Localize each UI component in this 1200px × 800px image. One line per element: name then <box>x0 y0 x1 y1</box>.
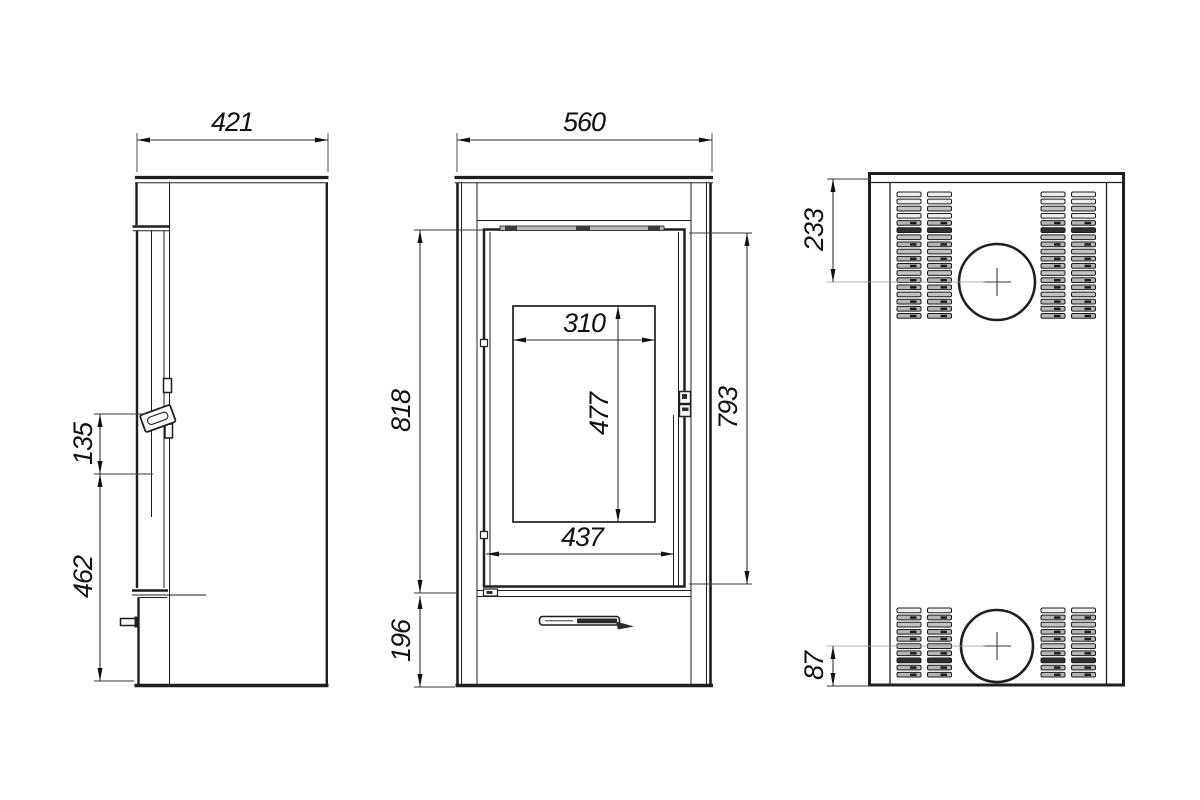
vent-slot <box>1072 285 1096 290</box>
vent-slot <box>928 221 952 226</box>
arrowhead-top-icon <box>418 230 423 243</box>
vent-slot <box>897 306 921 311</box>
vent-slot <box>1041 292 1065 297</box>
arrowhead-bottom-icon <box>418 580 423 593</box>
vent-slot-mark <box>1054 666 1061 668</box>
dim-label: 87 <box>799 650 829 680</box>
vent-slot <box>897 285 921 290</box>
vent-slot-mark <box>1085 308 1092 310</box>
vent-slot-mark <box>941 243 948 245</box>
arrowhead-top-icon <box>616 306 621 319</box>
vent-slot <box>928 622 952 627</box>
dimension-annotations: 42156013546281819631047743779323387 <box>68 107 985 687</box>
vent-slot <box>897 249 921 254</box>
vent-slot-mark <box>941 616 948 618</box>
vent-slot <box>897 213 921 218</box>
vent-slot <box>928 292 952 297</box>
vent-slot-mark <box>1085 652 1092 654</box>
vent-slot <box>897 672 921 677</box>
vent-slot <box>897 228 921 233</box>
vent-slot <box>1072 278 1096 283</box>
vent-slot <box>928 608 952 613</box>
vent-slot <box>928 672 952 677</box>
arrowhead-bottom-icon <box>418 674 423 687</box>
vent-slot-mark <box>941 279 948 281</box>
side-knob-mount <box>135 617 140 628</box>
vent-slot-mark <box>941 652 948 654</box>
side-detail-lines <box>132 183 328 685</box>
vent-slot <box>1072 228 1096 233</box>
vent-slot <box>1041 299 1065 304</box>
vent-slot <box>1072 672 1096 677</box>
vent-slot <box>1041 306 1065 311</box>
vent-slot <box>1072 271 1096 276</box>
vent-slot <box>1041 637 1065 642</box>
vent-slot <box>928 629 952 634</box>
vent-slot <box>897 206 921 211</box>
vent-slot <box>928 651 952 656</box>
vent-slot <box>897 264 921 269</box>
dim-437: 437 <box>486 522 674 557</box>
vent-slot-mark <box>910 631 917 633</box>
vent-slot <box>1041 221 1065 226</box>
arrowhead-left-icon <box>457 138 470 143</box>
vent-slot <box>928 314 952 319</box>
vent-slot-mark <box>941 638 948 640</box>
vent-slot <box>928 285 952 290</box>
vent-slot <box>1072 264 1096 269</box>
vent-slot <box>1041 235 1065 240</box>
vent-slot <box>897 637 921 642</box>
vent-slot <box>1041 651 1065 656</box>
vent-slot-mark <box>910 666 917 668</box>
vent-slot-mark <box>1054 638 1061 640</box>
vent-slot-mark <box>1085 300 1092 302</box>
side-door-knob <box>121 619 137 626</box>
vent-slot-mark <box>910 308 917 310</box>
arrowhead-bottom-icon <box>98 668 103 681</box>
vent-slot-mark <box>941 286 948 288</box>
vent-slot-mark <box>910 616 917 618</box>
vent-slot <box>1041 629 1065 634</box>
vent-slot-mark <box>1085 674 1092 676</box>
vent-slot <box>1041 615 1065 620</box>
vent-slot <box>1041 314 1065 319</box>
vent-slot-mark <box>1085 638 1092 640</box>
vent-slot-mark <box>1085 315 1092 317</box>
vent-slot <box>928 299 952 304</box>
side-body-edges <box>132 183 327 685</box>
vent-slot <box>897 299 921 304</box>
vent-slot <box>1041 278 1065 283</box>
vent-slot-mark <box>941 315 948 317</box>
vent-slot-mark <box>1054 279 1061 281</box>
dim-label: 793 <box>713 386 743 429</box>
arrowhead-bottom-icon <box>831 269 836 282</box>
vent-slot <box>897 629 921 634</box>
arrowhead-bottom-icon <box>745 571 750 584</box>
arrowhead-bottom-icon <box>616 509 621 522</box>
vent-slot-mark <box>1054 222 1061 224</box>
drawing-canvas: 42156013546281819631047743779323387 <box>0 0 1200 800</box>
vent-slot <box>1072 629 1096 634</box>
arrowhead-right-icon <box>315 138 328 143</box>
vent-slot <box>1072 644 1096 649</box>
vent-slot <box>928 192 952 197</box>
vent-slot <box>928 249 952 254</box>
vent-slot <box>897 622 921 627</box>
vent-slot <box>1072 213 1096 218</box>
vent-slot <box>1072 314 1096 319</box>
dim-label: 818 <box>386 389 416 432</box>
vent-slot-mark <box>941 300 948 302</box>
vent-slot-mark <box>941 674 948 676</box>
back-view <box>870 174 1124 686</box>
vent-slot-mark <box>1054 674 1061 676</box>
vent-slot-mark <box>1085 286 1092 288</box>
dim-421: 421 <box>137 107 328 172</box>
vent-slot <box>897 314 921 319</box>
vent-slot <box>1072 242 1096 247</box>
vent-slot-mark <box>1054 308 1061 310</box>
vent-slot-mark <box>1085 265 1092 267</box>
vent-slot-mark <box>1054 652 1061 654</box>
dim-462: 462 <box>68 474 134 681</box>
vent-slot <box>1072 306 1096 311</box>
vent-slot <box>928 264 952 269</box>
dim-label: 196 <box>386 618 416 662</box>
dim-label: 462 <box>68 555 98 598</box>
vent-slot-mark <box>910 286 917 288</box>
front-ash-lever <box>540 617 635 630</box>
vent-slot <box>897 256 921 261</box>
arrowhead-left-icon <box>486 552 499 557</box>
side-view <box>121 178 329 686</box>
vent-slot <box>1072 651 1096 656</box>
vent-slot <box>1072 235 1096 240</box>
dim-label: 233 <box>799 208 829 252</box>
vent-slot <box>1041 622 1065 627</box>
vent-slot-mark <box>910 638 917 640</box>
arrowhead-top-icon <box>418 596 423 609</box>
vent-slot-mark <box>1085 631 1092 633</box>
vent-slot <box>897 292 921 297</box>
vent-slot-mark <box>1085 666 1092 668</box>
vent-slot <box>928 242 952 247</box>
vent-slot-mark <box>910 300 917 302</box>
arrowhead-top-icon <box>98 414 103 427</box>
dim-560: 560 <box>457 107 712 172</box>
vent-slot-mark <box>941 631 948 633</box>
vent-slot <box>897 192 921 197</box>
vent-slot <box>897 242 921 247</box>
vent-slot <box>1072 292 1096 297</box>
vent-slot-mark <box>910 674 917 676</box>
dim-label: 421 <box>211 107 253 137</box>
vent-slot <box>1041 608 1065 613</box>
arrowhead-bottom-icon <box>831 673 836 686</box>
vent-slot-mark <box>910 265 917 267</box>
arrowhead-left-icon <box>137 138 150 143</box>
arrowhead-right-icon <box>699 138 712 143</box>
vent-slot-mark <box>1085 279 1092 281</box>
vent-slot <box>897 221 921 226</box>
vent-slot <box>1041 213 1065 218</box>
arrowhead-left-icon <box>513 338 526 343</box>
dim-310: 310 <box>513 308 655 343</box>
vent-slot <box>1072 608 1096 613</box>
vent-slot-mark <box>1054 258 1061 260</box>
vent-slot <box>1041 256 1065 261</box>
stove-technical-drawing: 42156013546281819631047743779323387 <box>0 0 1200 800</box>
vent-slot <box>928 615 952 620</box>
arrowhead-top-icon <box>831 179 836 192</box>
vent-slot-mark <box>910 652 917 654</box>
vent-slot <box>1072 206 1096 211</box>
vent-slot <box>1072 665 1096 670</box>
vent-slot <box>1072 199 1096 204</box>
vent-slot <box>928 206 952 211</box>
vent-slot-mark <box>1054 631 1061 633</box>
dim-label: 560 <box>563 107 606 137</box>
arrowhead-right-icon <box>642 338 655 343</box>
vent-slot-mark <box>941 308 948 310</box>
vent-slot-mark <box>941 666 948 668</box>
dim-label: 477 <box>584 391 614 435</box>
vent-slot <box>897 608 921 613</box>
vent-slot <box>1041 199 1065 204</box>
vent-slot <box>928 637 952 642</box>
vent-slot <box>1072 615 1096 620</box>
vent-slot <box>897 615 921 620</box>
vent-slot-mark <box>1054 616 1061 618</box>
vent-slot <box>928 228 952 233</box>
vent-slot-mark <box>910 258 917 260</box>
vent-slot-mark <box>1085 616 1092 618</box>
front-door-foot-mark <box>487 591 493 594</box>
vent-slot <box>1072 658 1096 663</box>
vent-slot <box>928 256 952 261</box>
vent-slot <box>1072 221 1096 226</box>
vent-slot-mark <box>910 315 917 317</box>
arrowhead-top-icon <box>831 646 836 659</box>
dim-793: 793 <box>689 233 752 584</box>
vent-slot <box>1072 256 1096 261</box>
vent-slot-mark <box>910 279 917 281</box>
vent-slot <box>897 235 921 240</box>
vent-slot-mark <box>1054 265 1061 267</box>
vent-slot-mark <box>941 258 948 260</box>
dim-135: 135 <box>68 414 153 474</box>
vent-slot <box>1041 249 1065 254</box>
vent-slot-mark <box>1085 222 1092 224</box>
vent-slot <box>1041 264 1065 269</box>
arrowhead-top-icon <box>745 233 750 246</box>
vent-slot <box>928 199 952 204</box>
vent-slot <box>1041 192 1065 197</box>
vent-slot-mark <box>910 222 917 224</box>
vent-slot <box>1041 665 1065 670</box>
dim-477: 477 <box>584 306 621 522</box>
vent-slot-mark <box>1085 243 1092 245</box>
vent-slot <box>928 235 952 240</box>
vent-slot-mark <box>1054 243 1061 245</box>
vent-slot <box>1072 299 1096 304</box>
vent-slot <box>1041 206 1065 211</box>
vent-slot <box>1041 644 1065 649</box>
dim-label: 437 <box>561 522 605 552</box>
vent-slot-mark <box>910 243 917 245</box>
vent-slot <box>1041 285 1065 290</box>
vent-slot <box>1072 622 1096 627</box>
vent-slot <box>928 658 952 663</box>
vent-slot-mark <box>941 265 948 267</box>
vent-slot <box>1041 658 1065 663</box>
vent-slot-mark <box>1054 286 1061 288</box>
vent-slot <box>1072 249 1096 254</box>
vent-slot <box>897 658 921 663</box>
vent-slot <box>1041 242 1065 247</box>
vent-slot-mark <box>1054 315 1061 317</box>
vent-slot <box>897 199 921 204</box>
dim-label: 310 <box>563 308 606 338</box>
vent-slot-mark <box>1054 300 1061 302</box>
arrowhead-top-icon <box>98 474 103 487</box>
vent-slot <box>928 213 952 218</box>
vent-slot <box>1041 672 1065 677</box>
vent-slot <box>928 665 952 670</box>
dim-196: 196 <box>386 596 455 687</box>
arrowhead-bottom-icon <box>98 461 103 474</box>
vent-slot <box>1041 228 1065 233</box>
vent-slot <box>897 271 921 276</box>
dim-label: 135 <box>68 421 98 465</box>
vent-slot <box>897 651 921 656</box>
vent-slot <box>1041 271 1065 276</box>
arrowhead-right-icon <box>661 552 674 557</box>
vent-slot <box>1072 192 1096 197</box>
vent-slot <box>897 665 921 670</box>
vent-slot <box>928 271 952 276</box>
vent-slot-mark <box>1085 258 1092 260</box>
vent-slot <box>1072 637 1096 642</box>
vent-slot <box>928 306 952 311</box>
vent-slot-mark <box>941 222 948 224</box>
dim-818: 818 <box>386 230 484 593</box>
